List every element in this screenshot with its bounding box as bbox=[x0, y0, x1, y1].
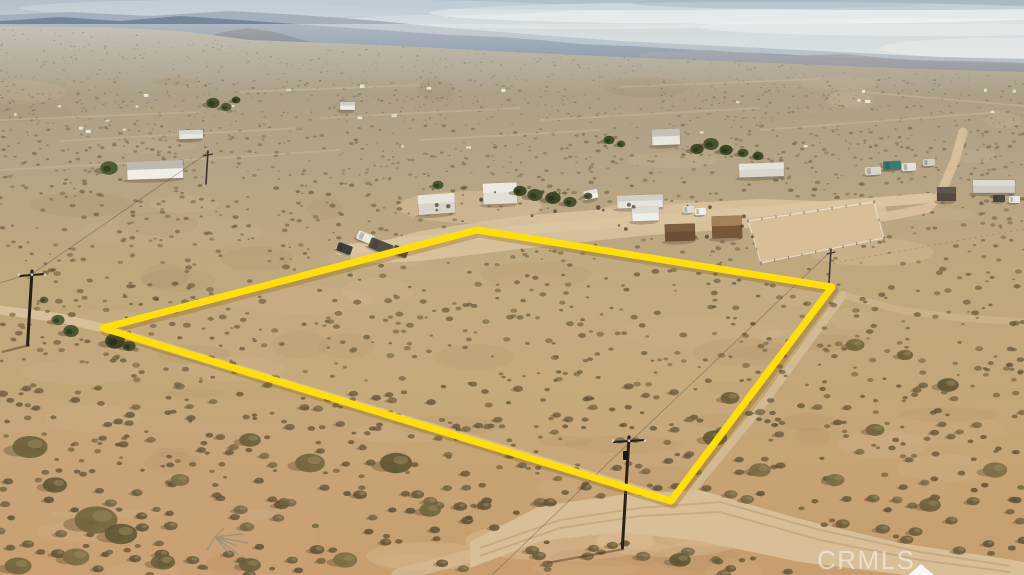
trailer-far-east bbox=[969, 180, 1015, 197]
distant-house bbox=[700, 131, 704, 133]
yard-clutter bbox=[435, 203, 439, 207]
yard-clutter bbox=[602, 209, 605, 212]
yard-clutter bbox=[446, 204, 450, 208]
yard-clutter bbox=[479, 197, 483, 201]
distant-house bbox=[865, 100, 870, 103]
house-northeast bbox=[648, 129, 680, 150]
yard-clutter bbox=[687, 205, 689, 207]
yard-clutter bbox=[624, 227, 628, 231]
distant-house bbox=[804, 145, 808, 147]
yard-clutter bbox=[632, 205, 636, 209]
rv-row-northeast bbox=[735, 162, 785, 181]
yard-clutter bbox=[618, 224, 620, 226]
yard-clutter bbox=[627, 203, 631, 207]
distant-house bbox=[466, 146, 471, 148]
distant-house bbox=[984, 89, 987, 92]
yard-clutter bbox=[705, 235, 709, 239]
rv-northwest bbox=[176, 130, 204, 143]
yard-clutter bbox=[708, 205, 712, 209]
distant-house bbox=[427, 87, 431, 90]
mls-watermark: CRMLS bbox=[817, 545, 916, 575]
aerial-photo: CRMLS bbox=[0, 0, 1024, 575]
scene-svg: CRMLS bbox=[0, 0, 1024, 575]
distant-house bbox=[736, 101, 739, 103]
distant-house bbox=[58, 105, 61, 107]
yard-clutter bbox=[436, 209, 439, 212]
yard-clutter bbox=[751, 235, 754, 238]
distant-house bbox=[991, 111, 995, 113]
distant-house bbox=[86, 130, 91, 133]
truck-dark-east bbox=[991, 195, 1005, 204]
distant-house bbox=[501, 89, 505, 92]
rv-small-1 bbox=[863, 167, 882, 178]
distant-house bbox=[358, 117, 363, 119]
yard-clutter bbox=[742, 214, 746, 218]
distant-house bbox=[1013, 90, 1016, 93]
yard-clutter bbox=[596, 205, 601, 210]
distant-house bbox=[232, 105, 235, 107]
rv-small-2 bbox=[900, 163, 917, 174]
yard-clutter bbox=[559, 192, 561, 194]
transformer bbox=[623, 451, 628, 460]
farmhouse bbox=[122, 160, 184, 184]
travel-trailer-east bbox=[628, 207, 659, 226]
yard-clutter bbox=[531, 214, 534, 217]
distant-house bbox=[105, 120, 109, 122]
distant-house bbox=[391, 114, 396, 117]
yard-clutter bbox=[494, 191, 496, 193]
distant-house bbox=[360, 85, 364, 88]
yard-clutter bbox=[740, 224, 743, 227]
distant-house bbox=[14, 113, 17, 116]
brown-barn bbox=[708, 215, 742, 242]
distant-house bbox=[286, 89, 291, 91]
distant-house bbox=[337, 102, 355, 114]
distant-house bbox=[79, 127, 83, 130]
truck-teal bbox=[880, 161, 901, 173]
shed-far-east bbox=[934, 187, 956, 205]
distant-house bbox=[862, 90, 865, 93]
brown-shed bbox=[661, 223, 695, 245]
distant-house bbox=[857, 99, 860, 102]
distant-house bbox=[136, 106, 139, 108]
distant-house bbox=[401, 145, 404, 148]
distant-house bbox=[123, 129, 126, 131]
tanks-center bbox=[479, 182, 518, 208]
sand-patch bbox=[20, 360, 140, 384]
yard-clutter bbox=[553, 209, 557, 213]
distant-house bbox=[144, 94, 149, 97]
